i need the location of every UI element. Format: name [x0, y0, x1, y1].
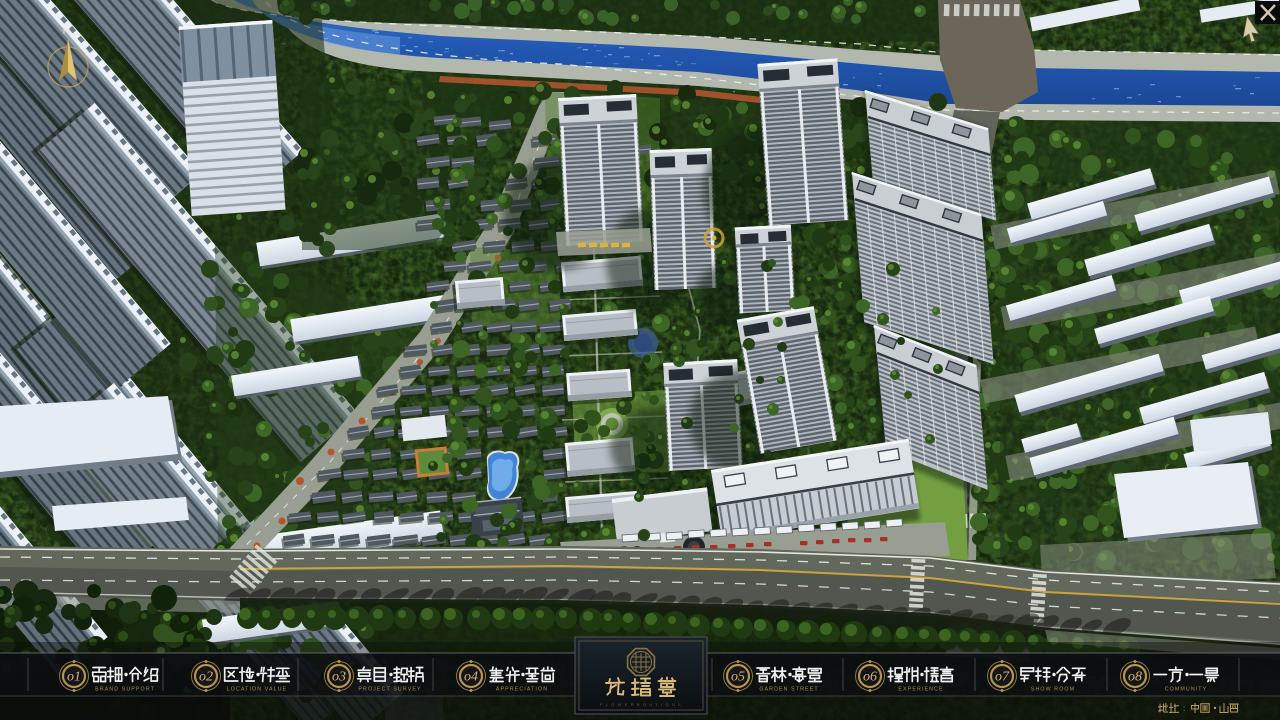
svg-text:APPRECIATION: APPRECIATION: [496, 687, 548, 693]
svg-text:PROJECT SURVEY: PROJECT SURVEY: [358, 687, 421, 693]
svg-text:o2: o2: [199, 670, 213, 685]
svg-text:o8: o8: [1128, 670, 1142, 685]
svg-text::: :: [1183, 704, 1185, 713]
svg-text:o4: o4: [464, 670, 478, 685]
svg-text:o7: o7: [995, 670, 1010, 685]
svg-text:o3: o3: [332, 670, 346, 685]
svg-text:EXPERIENCE: EXPERIENCE: [898, 687, 943, 693]
svg-text:SHOW ROOM: SHOW ROOM: [1031, 687, 1075, 693]
svg-text:F L O W E R B O U T I Q U E: F L O W E R B O U T I Q U E: [600, 702, 682, 707]
svg-text:o5: o5: [731, 670, 745, 685]
svg-text:LOCATION VALUE: LOCATION VALUE: [227, 687, 288, 693]
svg-text:GARDEN STREET: GARDEN STREET: [759, 687, 818, 693]
svg-text:o1: o1: [67, 670, 81, 685]
svg-text:COMMUNITY: COMMUNITY: [1165, 687, 1208, 693]
svg-text:BRAND SUPPORT: BRAND SUPPORT: [95, 687, 155, 693]
svg-text:o6: o6: [863, 670, 877, 685]
